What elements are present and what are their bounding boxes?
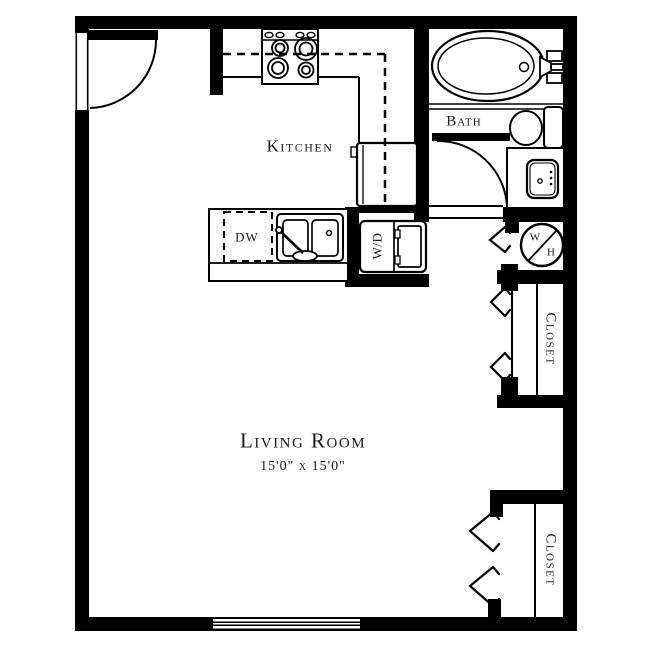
lower-closet-door-chevron-1 (470, 512, 499, 551)
water-heater-door-chevron (490, 227, 510, 252)
bath-door (432, 133, 510, 206)
upper-closet-door-chevron-1 (491, 288, 510, 316)
washer-dryer-label: W/D (371, 233, 384, 260)
interior-walls (210, 29, 563, 617)
bath-door-opening (429, 204, 503, 222)
water-heater-h-label: H (547, 248, 555, 259)
living-room-dimensions: 15'0" x 15'0" (260, 460, 346, 474)
vanity-sink (507, 148, 563, 207)
kitchen-counter-lines (223, 77, 359, 143)
kitchen-label: Kitchen (267, 138, 334, 155)
tub-faucet-icon (540, 51, 563, 83)
living-room-label: Living Room (240, 431, 366, 452)
floor-plan: Kitchen Bath Living Room 15'0" x 15'0" D… (0, 0, 650, 650)
entry-door-opening (75, 33, 89, 110)
upper-closet-door-chevron-2 (491, 353, 510, 381)
lower-closet-label: Closet (543, 533, 558, 586)
tub-deck-line (429, 104, 563, 109)
window (213, 617, 360, 631)
dishwasher-label: DW (235, 231, 259, 244)
closet-lines (512, 284, 537, 617)
water-heater-w-label: W (530, 233, 540, 244)
stove (262, 29, 318, 84)
water-heater (521, 224, 563, 266)
toilet (510, 107, 563, 148)
bath-label: Bath (446, 115, 481, 130)
kitchen-sink (276, 214, 343, 261)
upper-closet-label: Closet (543, 312, 558, 365)
kitchen-lower-counter (209, 209, 348, 281)
entry-door (88, 30, 158, 108)
bathtub (432, 31, 563, 101)
